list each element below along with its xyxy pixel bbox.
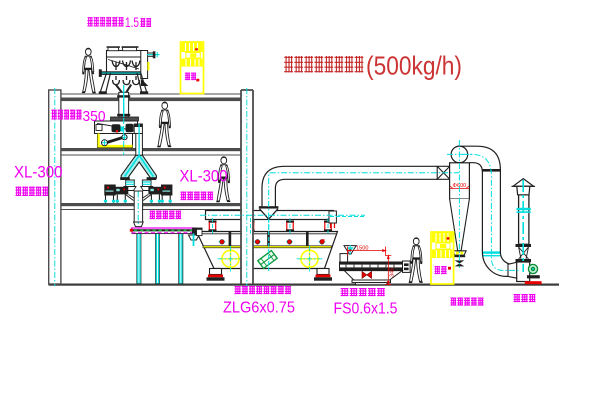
svg-text:FS0.6x1.5: FS0.6x1.5 <box>334 301 398 318</box>
svg-text:345: 345 <box>390 268 396 277</box>
svg-text:ZLG6x0.75: ZLG6x0.75 <box>223 300 295 317</box>
svg-text:350: 350 <box>83 108 106 125</box>
svg-text:(500kg/h): (500kg/h) <box>366 51 462 81</box>
svg-text:XL-300: XL-300 <box>14 164 63 182</box>
svg-text:XL-300: XL-300 <box>180 168 228 186</box>
svg-text:1.5: 1.5 <box>125 15 139 30</box>
svg-text:1500: 1500 <box>356 245 368 251</box>
